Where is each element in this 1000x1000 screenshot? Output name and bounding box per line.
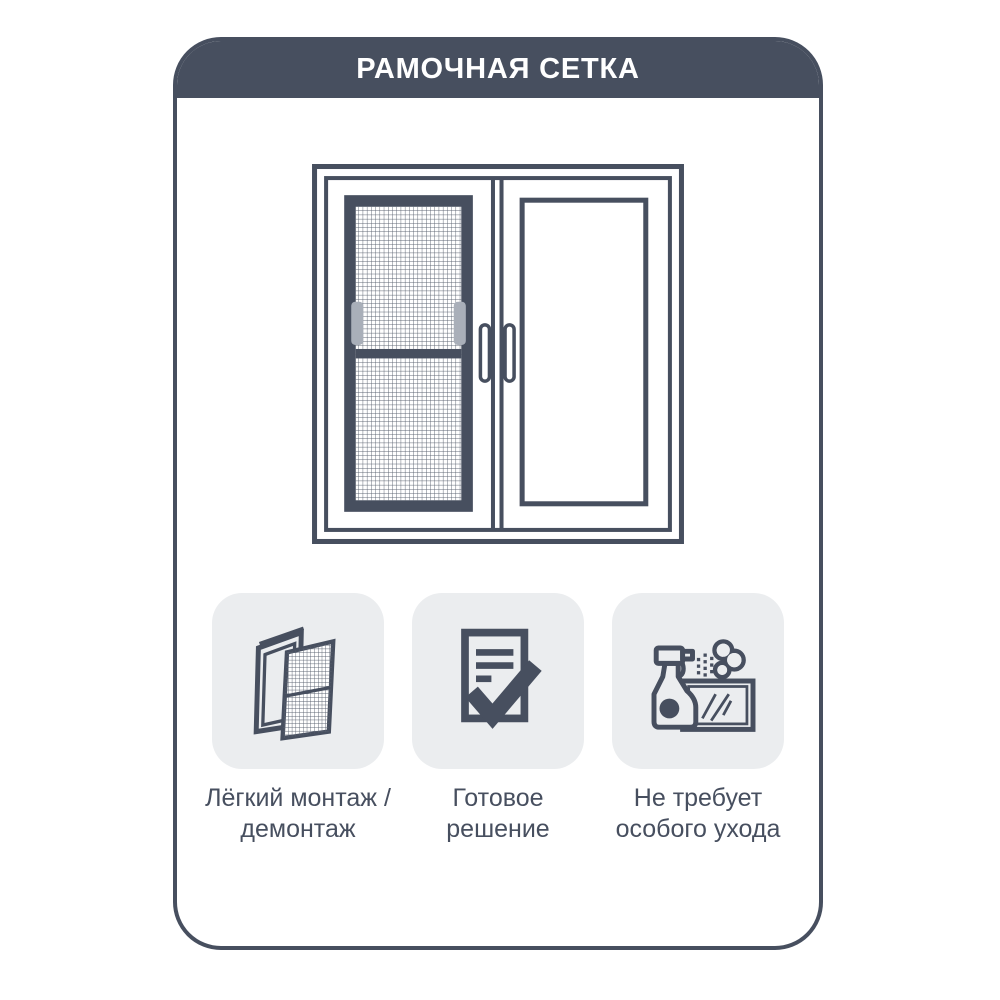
ready-solution-icon xyxy=(412,593,584,769)
card-header: РАМОЧНАЯ СЕТКА xyxy=(176,40,820,98)
page-title: РАМОЧНАЯ СЕТКА xyxy=(356,53,639,86)
feature-ready-solution: Готовое решение xyxy=(412,593,584,845)
feature-label: Не требует особого ухода xyxy=(578,783,818,845)
window-mosquito-net-illustration xyxy=(312,164,684,544)
product-feature-card: РАМОЧНАЯ СЕТКА xyxy=(173,37,823,950)
easy-install-icon xyxy=(212,593,384,769)
easy-care-icon xyxy=(612,593,784,769)
feature-easy-install: Лёгкий монтаж / демонтаж xyxy=(212,593,384,845)
features-row: Лёгкий монтаж / демонтаж Готовое решение xyxy=(177,593,819,845)
feature-easy-care: Не требует особого ухода xyxy=(612,593,784,845)
